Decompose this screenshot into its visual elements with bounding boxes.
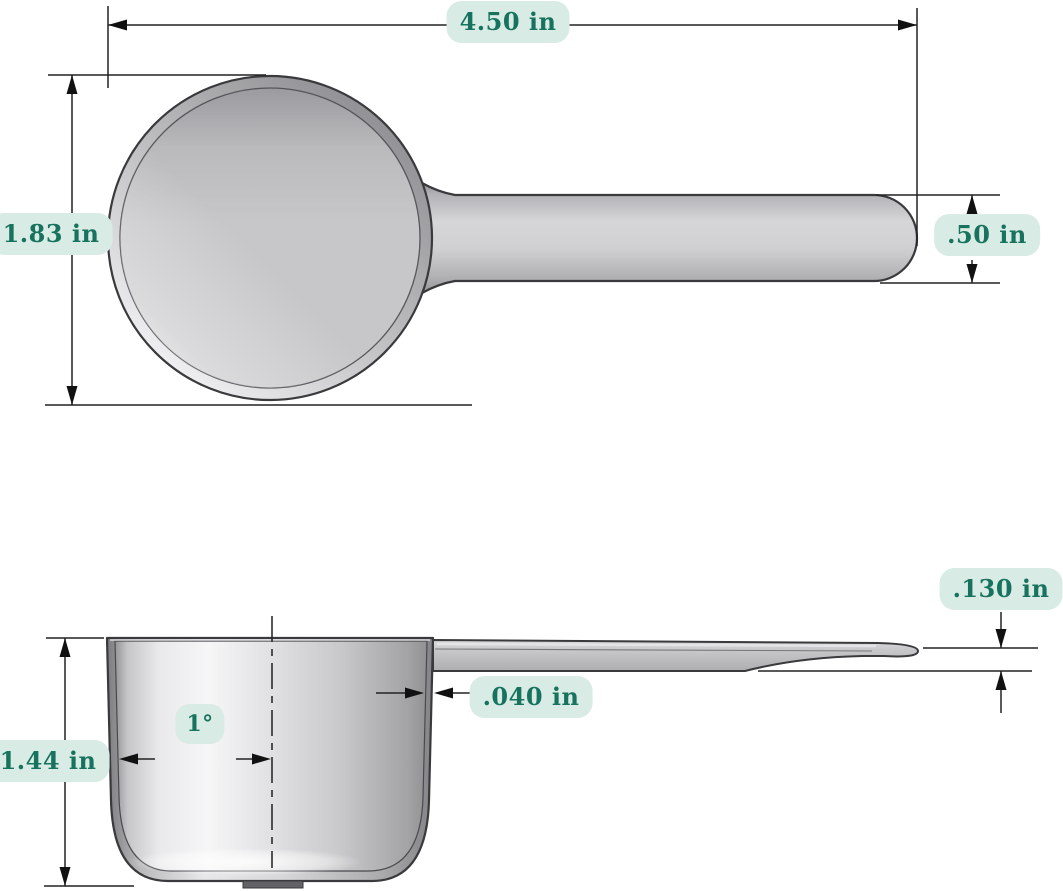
dim-label-overall-length: 4.50 in bbox=[447, 1, 570, 43]
bottom-tab bbox=[243, 881, 303, 888]
handle-top-view bbox=[380, 183, 917, 293]
dim-label-cup-height: 1.44 in bbox=[0, 740, 109, 782]
dim-label-wall-thickness: .040 in bbox=[470, 676, 593, 718]
cavity-bottom-highlight bbox=[127, 848, 363, 876]
cup-cavity bbox=[115, 641, 427, 871]
dim-label-draft-angle: 1° bbox=[175, 704, 224, 744]
dim-label-handle-thickness: .130 in bbox=[940, 568, 1063, 610]
scoop-dimension-drawing: 4.50 in 1.83 in .50 in .130 in .040 in 1… bbox=[0, 0, 1063, 891]
scoop-side-view bbox=[107, 616, 918, 888]
bowl-inner-highlight bbox=[120, 88, 420, 388]
dim-handle-thickness bbox=[758, 612, 1038, 713]
dim-label-handle-width: .50 in bbox=[934, 214, 1040, 256]
dim-label-bowl-diameter: 1.83 in bbox=[0, 213, 112, 255]
scoop-top-view bbox=[108, 76, 917, 400]
drawing-canvas bbox=[0, 0, 1063, 891]
